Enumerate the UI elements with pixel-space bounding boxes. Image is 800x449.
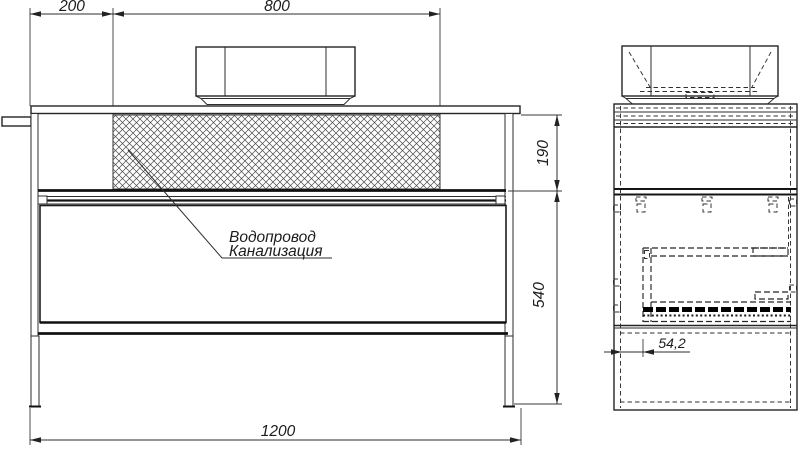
left-side-panel [31, 114, 38, 337]
sink-side [622, 46, 778, 105]
dim-800-label: 800 [264, 0, 290, 15]
dimension-right: 190 540 [508, 115, 562, 404]
dim-540-label: 540 [531, 282, 548, 308]
sink-front [196, 47, 355, 105]
front-view: 200 800 [2, 0, 562, 445]
countertop [31, 106, 520, 114]
dim-190-label: 190 [535, 140, 552, 166]
drawer-front [40, 206, 506, 323]
side-view: 54,2 [604, 46, 797, 410]
utility-hatch-region [113, 115, 440, 189]
vanity-technical-drawing: 200 800 [0, 0, 800, 449]
legs [29, 336, 515, 407]
dim-1200-label: 1200 [261, 423, 296, 440]
cabinet-side-outline [614, 104, 797, 410]
dimension-bottom: 1200 [30, 408, 521, 445]
dim-54-2-label: 54,2 [658, 335, 685, 351]
dim-200-label: 200 [58, 0, 85, 15]
blueprint-canvas: 200 800 [0, 0, 800, 449]
wall-bracket-tab [2, 117, 31, 126]
shelf-and-rail [38, 191, 506, 205]
pipe-note-line2: Канализация [229, 243, 323, 260]
